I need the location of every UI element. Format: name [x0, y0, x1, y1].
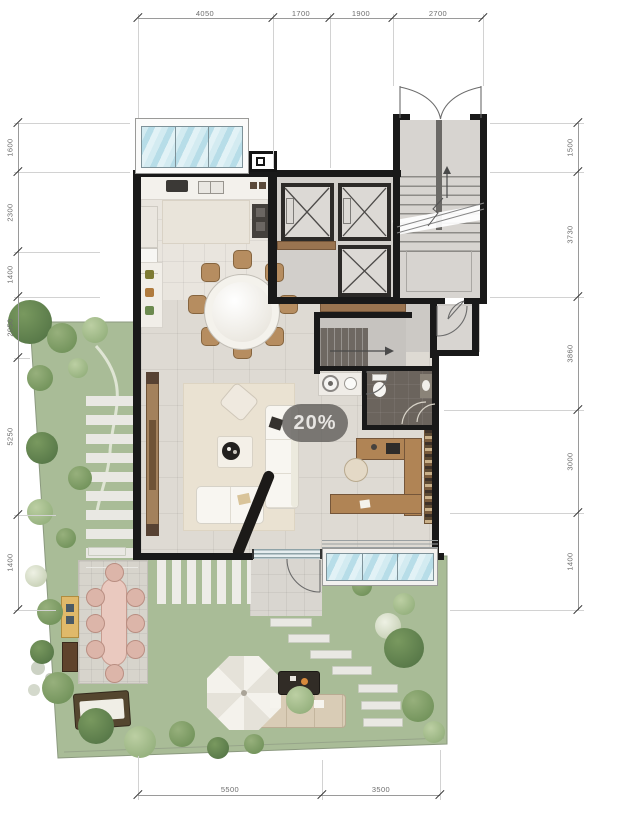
stepping-stones-mid	[157, 560, 251, 604]
desk-return	[330, 494, 422, 514]
tree	[37, 599, 63, 625]
wall	[362, 425, 438, 430]
extension-line	[393, 14, 394, 86]
fire-table-decor	[301, 678, 308, 685]
bay-window-glass	[141, 126, 243, 168]
extension-line	[14, 172, 130, 173]
dim-left-2: 2300	[6, 191, 15, 235]
grill-burner-icon	[66, 616, 74, 624]
extension-line	[450, 610, 584, 611]
stepping-stone	[88, 547, 126, 556]
tree	[78, 708, 114, 744]
tree	[27, 365, 53, 391]
extension-line	[14, 515, 56, 516]
garden-step	[361, 701, 401, 710]
outdoor-chair	[126, 588, 145, 607]
internal-stair-treads	[320, 328, 368, 366]
dim-top-3: 1900	[336, 9, 386, 18]
tray-decor	[227, 447, 231, 451]
extension-line	[330, 14, 331, 168]
extension-line	[444, 410, 584, 411]
bbq-grill	[62, 642, 78, 672]
stair-landing-outline	[406, 250, 472, 292]
dim-bottom-2: 3500	[356, 785, 406, 794]
dining-chair	[201, 263, 220, 282]
tree	[8, 300, 52, 344]
sofa-pillow	[314, 700, 324, 708]
toilet-bowl	[373, 382, 386, 397]
kitchen-island	[162, 200, 250, 244]
shelf-decor	[145, 288, 154, 297]
wall	[362, 368, 367, 428]
extension-line	[14, 610, 56, 611]
terrace-paving	[250, 556, 322, 616]
grill-burner-icon	[66, 604, 74, 612]
garden-step	[310, 650, 352, 659]
tree	[27, 499, 53, 525]
tree	[393, 593, 415, 615]
wall	[268, 297, 400, 304]
wall	[480, 114, 487, 304]
wall	[133, 170, 141, 560]
dim-left-5: 5250	[6, 415, 15, 459]
sliding-door	[252, 549, 322, 559]
extension-line	[490, 172, 584, 173]
tree	[47, 323, 77, 353]
flowering-shrub	[25, 565, 47, 587]
dim-right-1: 1500	[566, 126, 575, 170]
wall	[393, 114, 410, 120]
oven-icon	[256, 208, 265, 217]
tree	[286, 686, 314, 714]
paper-icon	[359, 499, 370, 508]
extension-line	[483, 14, 484, 86]
dim-right-2: 3730	[566, 213, 575, 257]
extension-line	[14, 297, 100, 298]
tree	[244, 734, 264, 754]
lobby-threshold	[277, 241, 336, 250]
tree	[68, 466, 92, 490]
outdoor-chair	[86, 614, 105, 633]
outdoor-chair	[105, 563, 124, 582]
tray-decor	[233, 450, 237, 454]
tree	[124, 726, 156, 758]
extension-line	[14, 123, 130, 124]
cabinet-end	[146, 372, 159, 384]
elevator-counterweight	[286, 198, 294, 224]
zoom-level-badge: 20%	[282, 404, 348, 442]
tree	[402, 690, 434, 722]
dim-right-3: 3860	[566, 332, 575, 376]
bay-window-glass-south	[326, 553, 434, 581]
garden-step	[332, 666, 372, 675]
sink-basin	[422, 380, 430, 391]
garden-step	[358, 684, 398, 693]
dim-top-4: 2700	[413, 9, 463, 18]
tree	[68, 358, 88, 378]
garden-step	[363, 718, 403, 727]
extension-line	[138, 14, 139, 118]
wall	[393, 298, 445, 304]
dim-top-2: 1700	[276, 9, 326, 18]
tree	[169, 721, 195, 747]
dim-bottom-1: 5500	[205, 785, 255, 794]
wall	[470, 114, 487, 120]
sink-divider	[210, 181, 211, 194]
wall	[314, 312, 412, 318]
flue-inner	[256, 157, 265, 166]
tree	[384, 628, 424, 668]
tree	[207, 737, 229, 759]
extension-line	[14, 252, 100, 253]
laundry-sink-icon	[344, 377, 357, 390]
wall	[314, 312, 320, 374]
tv-cabinet-inlay	[149, 420, 156, 490]
wall	[432, 352, 439, 560]
wall	[464, 298, 487, 304]
elevator-counterweight	[343, 198, 351, 224]
extension-line	[273, 14, 274, 168]
wall	[133, 553, 253, 560]
wall	[393, 114, 400, 304]
dimension-line-top	[138, 18, 483, 19]
extension-line	[490, 123, 584, 124]
dim-top-1: 4050	[180, 9, 230, 18]
dining-chair	[233, 250, 252, 269]
laptop-icon	[386, 443, 400, 454]
dim-left-1: 1600	[6, 126, 15, 170]
tree	[42, 672, 74, 704]
floor-plan-canvas: 20% 4050 1700 1900 2700 5500 35	[0, 0, 638, 813]
elevator-shaft	[338, 245, 391, 297]
dim-right-4: 3000	[566, 440, 575, 484]
extension-line	[450, 513, 584, 514]
toilet-tank	[372, 374, 387, 381]
dim-left-4: 2050	[6, 306, 15, 350]
entry-landing-floor	[437, 306, 472, 352]
coffee-table-tray	[222, 442, 240, 460]
fire-table-tray	[290, 676, 296, 681]
desk-lamp-icon	[371, 444, 377, 450]
extension-line	[490, 297, 584, 298]
tree	[26, 432, 58, 464]
outdoor-chair	[86, 640, 105, 659]
outdoor-chair	[86, 588, 105, 607]
tree	[30, 640, 54, 664]
dimension-line-bottom	[138, 795, 440, 796]
wall	[472, 300, 479, 355]
garden-step	[270, 618, 312, 627]
outdoor-chair	[105, 664, 124, 683]
wall	[430, 350, 479, 356]
console-table	[320, 303, 406, 312]
wall	[268, 170, 277, 304]
wall	[314, 366, 438, 371]
small-appliance-icon	[259, 182, 266, 189]
microwave-icon	[256, 222, 265, 231]
dim-left-6: 1400	[6, 541, 15, 585]
kitchen-sink-icon	[198, 181, 224, 194]
cabinet-end	[146, 524, 159, 536]
tree	[423, 721, 445, 743]
stepping-stones-left	[86, 396, 138, 568]
outdoor-chair	[126, 614, 145, 633]
shelf-decor	[145, 306, 154, 315]
dimension-line-left	[18, 123, 19, 610]
desk-chair	[344, 458, 368, 482]
shelf-decor	[145, 270, 154, 279]
dim-left-3: 1400	[6, 253, 15, 297]
tree	[56, 528, 76, 548]
dimension-line-right	[578, 123, 579, 610]
washer-drum	[328, 381, 333, 386]
dim-right-5: 1400	[566, 540, 575, 584]
outdoor-chair	[126, 640, 145, 659]
small-appliance-icon	[250, 182, 257, 189]
parasol-pole	[241, 690, 247, 696]
tree	[82, 317, 108, 343]
cooktop-icon	[166, 180, 188, 192]
garden-step	[288, 634, 330, 643]
sofa-pillow	[270, 700, 280, 708]
